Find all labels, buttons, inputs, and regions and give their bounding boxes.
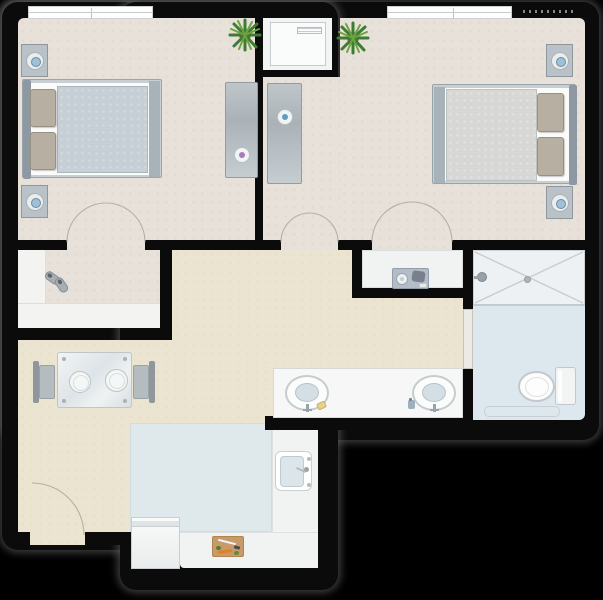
dishwasher	[131, 517, 180, 569]
closet-shelf	[18, 303, 160, 328]
herb-icon	[234, 551, 239, 555]
decor-bowl	[234, 147, 250, 163]
table-lamp	[26, 52, 44, 70]
potted-plant-icon	[226, 16, 264, 54]
table-lamp	[551, 194, 569, 212]
table-lamp	[26, 193, 44, 211]
floor-drain-icon	[524, 276, 531, 283]
kitchen-floor	[130, 423, 272, 532]
table-fitting	[62, 357, 66, 361]
table-fitting	[123, 399, 127, 403]
washer-vent	[297, 27, 322, 34]
decor-bowl	[277, 109, 293, 125]
nightstand	[546, 186, 573, 219]
knife-handle	[234, 545, 241, 549]
wall	[85, 532, 130, 545]
toothbrush-cup	[408, 400, 415, 409]
kitchen-sink	[275, 451, 312, 491]
coffee-cup	[396, 273, 408, 285]
table-fitting	[123, 357, 127, 361]
plate	[105, 369, 128, 392]
room-utility-closet	[263, 18, 332, 70]
vanity-sink	[412, 375, 456, 411]
window	[387, 6, 512, 19]
dining-table	[57, 352, 132, 408]
headboard	[569, 85, 577, 185]
double-vanity	[273, 368, 463, 418]
nightstand	[21, 44, 48, 77]
sink-basin	[422, 383, 446, 402]
bed	[432, 84, 576, 184]
pillow	[30, 89, 56, 127]
duvet	[446, 89, 537, 181]
faucet-knob	[307, 457, 311, 461]
toilet-tank	[555, 367, 576, 405]
chair-seat	[133, 365, 149, 399]
pocket-door	[463, 309, 473, 369]
duvet	[57, 86, 148, 173]
wall	[145, 240, 281, 250]
table-fitting	[62, 399, 66, 403]
pillow	[30, 132, 56, 170]
footboard	[434, 87, 445, 183]
chair-back	[149, 361, 155, 403]
coffee-tray	[392, 268, 429, 289]
wall	[8, 532, 30, 545]
wall	[352, 288, 463, 298]
wall	[265, 416, 473, 430]
window	[28, 6, 153, 19]
cutting-board	[212, 536, 244, 557]
toilet	[518, 371, 555, 402]
dining-chair	[33, 361, 56, 403]
chair-seat	[39, 365, 55, 399]
carrot-icon	[218, 549, 232, 554]
potted-plant-icon	[334, 19, 372, 57]
wall-vent-dots	[523, 10, 573, 13]
kitchen-counter	[180, 532, 318, 568]
sink-basin	[280, 456, 304, 487]
faucet-icon	[304, 467, 309, 472]
washer	[270, 22, 326, 66]
window-mullion	[453, 8, 454, 19]
nightstand	[546, 44, 573, 77]
table-lamp	[551, 52, 569, 70]
closet-shelf	[18, 250, 46, 305]
dresser	[267, 83, 302, 184]
knife-icon	[218, 539, 236, 545]
napkin	[419, 283, 427, 288]
bed	[22, 79, 162, 178]
kettle	[411, 270, 425, 283]
faucet-icon	[433, 404, 436, 412]
herb-icon	[216, 546, 221, 550]
pillow	[537, 137, 564, 176]
dining-chair	[132, 361, 155, 403]
walk-in-shower	[473, 250, 585, 306]
shower-head-icon	[477, 272, 487, 282]
wall	[8, 240, 67, 250]
footboard	[149, 81, 160, 177]
pillow	[537, 93, 564, 132]
faucet-knob	[307, 483, 311, 487]
bath-mat	[484, 406, 560, 417]
plate	[69, 371, 91, 393]
sink-basin	[295, 383, 319, 402]
faucet-icon	[306, 404, 309, 412]
nightstand	[21, 185, 48, 218]
window-mullion	[91, 8, 92, 19]
dresser	[225, 82, 258, 178]
floor-plan	[0, 0, 603, 600]
